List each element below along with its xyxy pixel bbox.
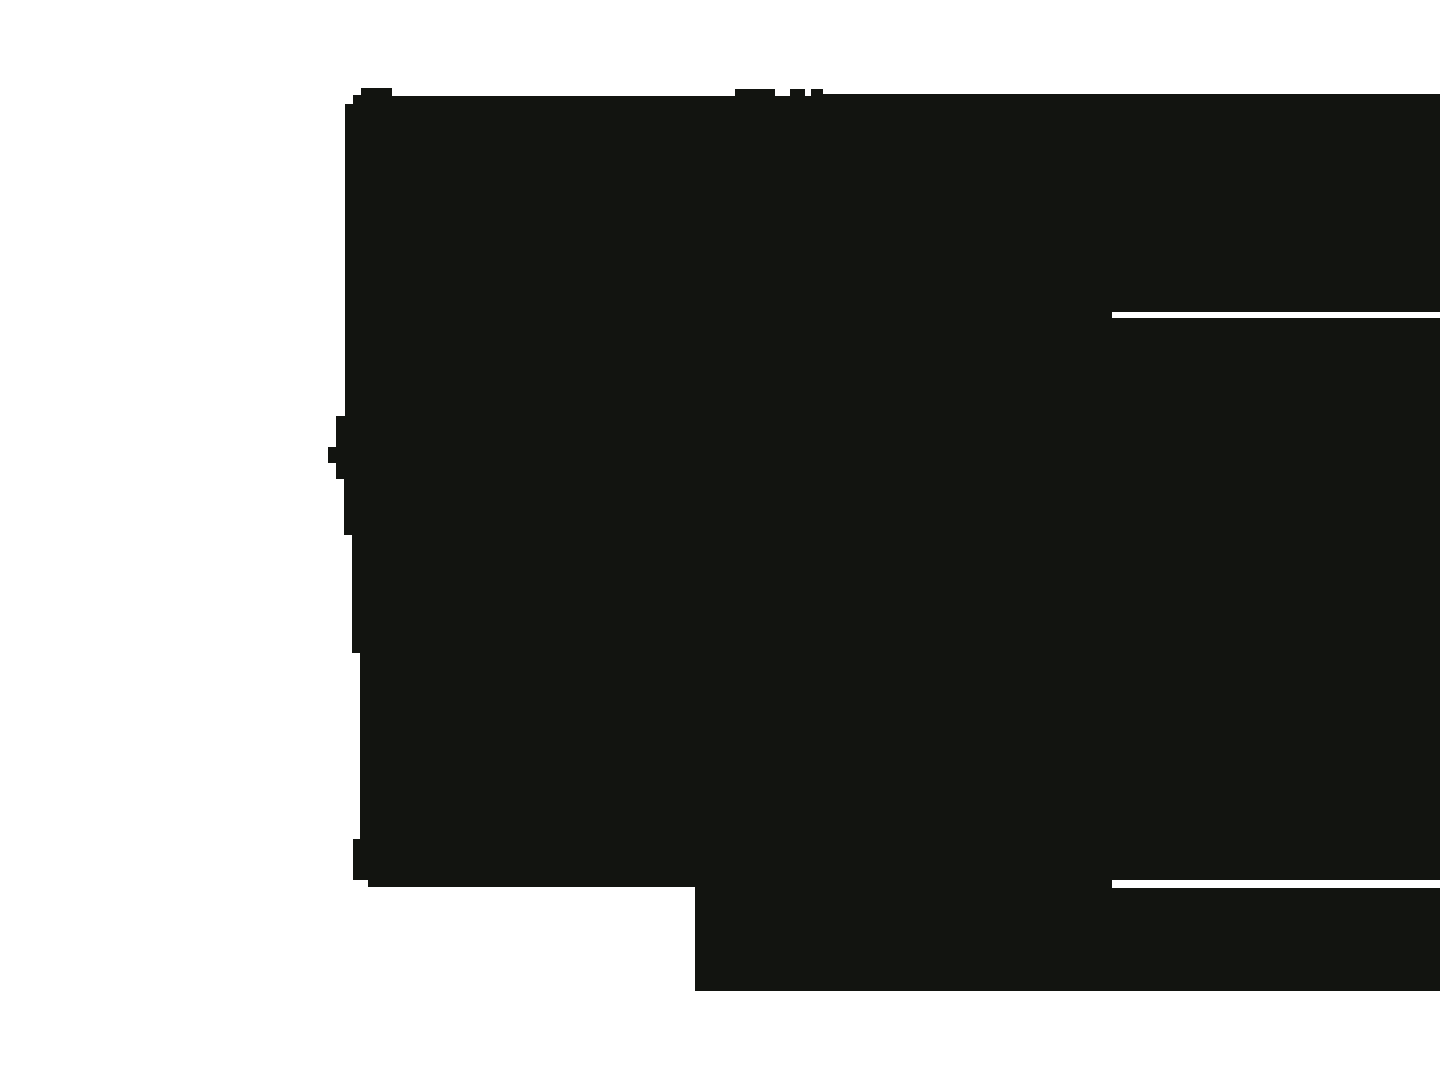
black-silhouette (328, 88, 1440, 991)
screenshot-canvas (0, 0, 1440, 1080)
silhouette-svg (0, 0, 1440, 1080)
